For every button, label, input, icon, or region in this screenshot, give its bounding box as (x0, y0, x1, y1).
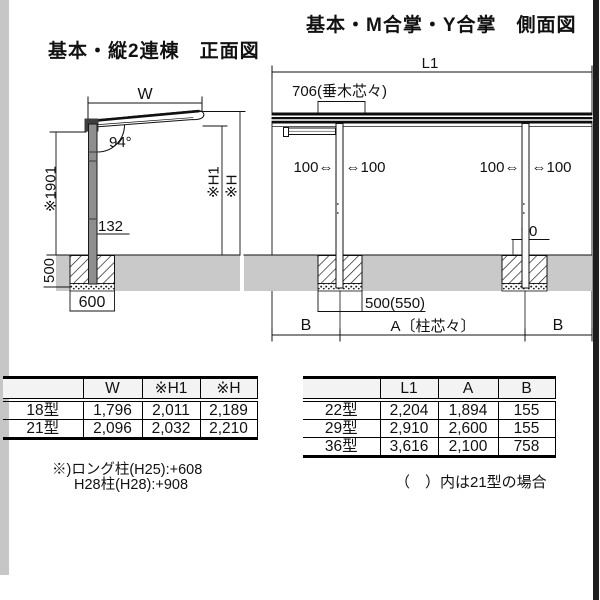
table-header-cell: ※H1 (142, 378, 200, 401)
table-row-label: 22型 (303, 400, 380, 420)
side-view-drawing: L1 706(垂木芯々) (244, 55, 592, 341)
table-cell: 155 (498, 400, 555, 420)
footing-size-label: 500(550) (365, 295, 425, 312)
table-cell: 3,616 (380, 438, 438, 457)
table-cell: 2,032 (142, 420, 200, 439)
support-post-right (522, 124, 529, 289)
h1-label: ※H1 (206, 166, 223, 198)
footing-depth-label: 500 (41, 258, 58, 283)
footing-width-label: 600 (79, 294, 106, 311)
w-dimension-label: W (137, 86, 153, 103)
table-cell: 2,910 (380, 420, 438, 438)
carport-spec-sheet: 基本・縦2連棟 正面図 基本・M合掌・Y合掌 側面図 W (0, 0, 600, 600)
technical-drawing: W 94° ※1901 ※ (0, 0, 600, 600)
table-cell: 2,210 (200, 420, 257, 439)
overhang-left-out-label: 100⇔ (293, 159, 333, 176)
table-cell: 2,096 (83, 420, 142, 439)
edge-offset-lines (512, 240, 549, 255)
overhang-right-out-label: 100⇔ (479, 159, 519, 176)
table-row: 29型 2,910 2,600 155 (303, 420, 555, 438)
table-row: 36型 3,616 2,100 758 (303, 438, 555, 457)
base-offset-label: 132 (98, 218, 123, 235)
table-cell: 2,600 (438, 420, 498, 438)
extension-lines (272, 72, 592, 335)
table-row-label: 21型 (3, 420, 83, 439)
table-header-cell (3, 378, 83, 401)
table-header-cell: B (498, 378, 555, 401)
table-header-cell: ※H (200, 378, 257, 401)
angle-label: 94° (109, 134, 132, 151)
table-row-label: 18型 (3, 400, 83, 420)
table-row: 22型 2,204 1,894 155 (303, 400, 555, 420)
table-header-cell: W (83, 378, 142, 401)
table-cell: 2,011 (142, 400, 200, 420)
overhang-right-in-label: ⇔100 (532, 159, 572, 176)
support-post-left (336, 124, 343, 289)
support-post (89, 124, 98, 284)
post-height-label: ※1901 (43, 166, 60, 212)
table-cell: 1,894 (438, 400, 498, 420)
gutter-detail (284, 128, 336, 137)
side-table-note: （ ）内は21型の場合 (395, 471, 547, 492)
table-cell: 758 (498, 438, 555, 457)
table-row: 21型 2,096 2,032 2,210 (3, 420, 257, 439)
table-header-cell: A (438, 378, 498, 401)
table-header-cell: L1 (380, 378, 438, 401)
span-a-label: A〔柱芯々〕 (390, 318, 475, 335)
table-row: 18型 1,796 2,011 2,189 (3, 400, 257, 420)
roof-beam (272, 113, 592, 127)
rafter-pitch-bracket (318, 102, 365, 113)
overhang-left-in-label: ⇔100 (346, 159, 386, 176)
span-b-left-label: B (301, 317, 312, 334)
h-label: ※H (224, 175, 241, 198)
front-dimensions-table: W ※H1 ※H 18型 1,796 2,011 2,189 21型 2,096… (3, 376, 258, 440)
front-view-drawing: W 94° ※1901 ※ (41, 86, 245, 311)
roof-panel (88, 111, 204, 128)
table-row-label: 29型 (303, 420, 380, 438)
table-cell: 155 (498, 420, 555, 438)
span-b-right-label: B (553, 317, 564, 334)
gravel-layer (70, 284, 115, 292)
rafter-pitch-label: 706(垂木芯々) (292, 83, 387, 100)
l1-dimension-label: L1 (422, 55, 439, 72)
table-header-row: W ※H1 ※H (3, 378, 257, 401)
table-header-cell (303, 378, 380, 401)
table-cell: 2,100 (438, 438, 498, 457)
front-table-note-2: H28柱(H28):+908 (74, 473, 188, 494)
table-cell: 2,204 (380, 400, 438, 420)
table-cell: 2,189 (200, 400, 257, 420)
table-header-row: L1 A B (303, 378, 555, 401)
table-cell: 1,796 (83, 400, 142, 420)
side-dimensions-table: L1 A B 22型 2,204 1,894 155 29型 2,910 2,6… (303, 376, 556, 458)
table-row-label: 36型 (303, 438, 380, 457)
